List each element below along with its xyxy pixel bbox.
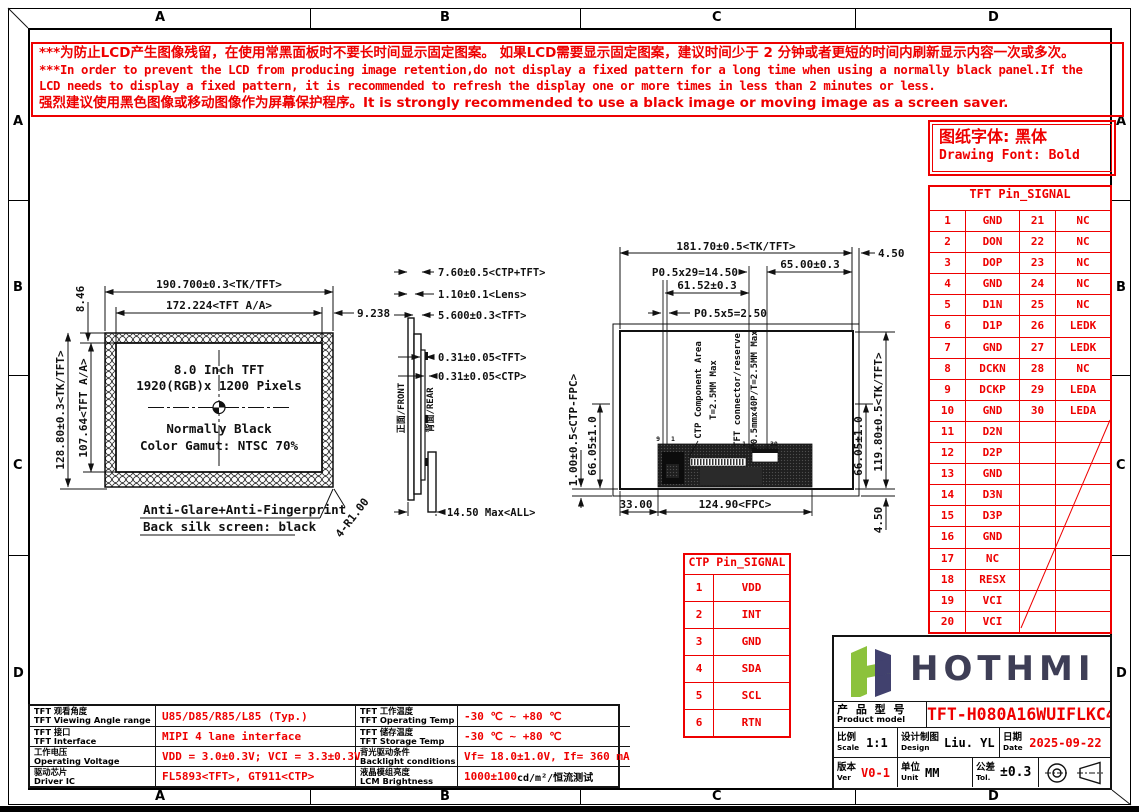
zone-divider [1112,375,1131,376]
pin-cell: 9 [930,380,966,400]
version-cell: 版本Ver V0-1 [834,758,898,787]
pin-cell: 3 [930,253,966,273]
spec-row: 驱动芯片Driver IC FL5893<TFT>, GT911<CTP> 液晶… [30,766,630,786]
zone-divider [855,8,856,28]
pin-row: 1GND21NC [930,211,1110,231]
zone-divider [580,8,581,28]
scale-cell: 比例Scale 1:1 [834,728,898,757]
pin-cell: 15 [930,506,966,526]
pin-cell: DCKN [966,359,1020,379]
pin-cell: DOP [966,253,1020,273]
pin-cell: 4 [930,274,966,294]
engineering-drawing-page: A B C D A B C D A B C D A B C D ***为防止LC… [0,0,1139,812]
pin-cell: 1 [930,211,966,231]
pin-cell [1056,485,1110,505]
pin-row: 3GND [685,628,789,655]
pin-cell: 8 [930,359,966,379]
spec-label: 背光驱动条件Backlight conditions [356,747,458,766]
pin-row: 15D3P [930,505,1110,526]
zone-label: B [1116,280,1126,295]
zone-label: B [440,10,450,25]
pin-cell: VCI [966,612,1020,632]
pin-cell [1020,570,1056,590]
third-angle-projection-icon [1044,760,1106,786]
zone-label: C [712,789,722,804]
pin-cell: 17 [930,549,966,569]
tolerance-cell: 公差Tol. ±0.3 [973,758,1039,787]
ver-unit-tol-row: 版本Ver V0-1 单位Unit MM 公差Tol. ±0.3 [834,757,1110,787]
pin-cell: 29 [1020,380,1056,400]
pin-cell: 1 [685,575,714,601]
zone-divider [8,375,28,376]
pin-cell: 11 [930,422,966,442]
pin-row: 6D1P26LEDK [930,315,1110,336]
spec-value: 1000±100 cd/m²/恒流测试 [458,767,630,786]
pin-cell [1020,549,1056,569]
hothmi-logo-icon [842,641,900,697]
pin-row: 6RTN [685,709,789,736]
zone-label: D [13,666,24,681]
tft-pin-table: TFT Pin_SIGNAL 1GND21NC 2DON22NC 3DOP23N… [928,185,1112,634]
spec-row: TFT 观看角度TFT Viewing Angle range U85/D85/… [30,706,630,726]
spec-label: TFT 观看角度TFT Viewing Angle range [30,706,156,726]
image-retention-warning: ***为防止LCD产生图像残留，在使用常黑面板时不要长时间显示固定图案。 如果L… [31,42,1124,117]
pin-cell [1056,443,1110,463]
pin-row: 5D1N25NC [930,294,1110,315]
pin-cell: D1P [966,316,1020,336]
scale-design-date-row: 比例Scale 1:1 设计制图Design Liu. YL 日期Date 20… [834,727,1110,757]
zone-label: C [13,458,23,473]
pin-cell: D3P [966,506,1020,526]
pin-cell: GND [714,629,789,655]
warning-line: ***In order to prevent the LCD from prod… [39,62,1116,79]
zone-divider [310,790,311,805]
pin-cell: 4 [685,656,714,682]
title-block: HOTHMI 产 品 型 号Product model TFT-H080A16W… [832,635,1112,790]
pin-cell: 30 [1020,401,1056,421]
pin-cell [1020,443,1056,463]
pin-cell: 25 [1020,295,1056,315]
pin-cell: 18 [930,570,966,590]
warning-line: LCD needs to display a fixed pattern, it… [39,78,1116,95]
ctp-pin-table-title: CTP Pin_SIGNAL [685,555,789,575]
pin-cell: DON [966,232,1020,252]
pin-cell: 5 [930,295,966,315]
pin-cell: D2P [966,443,1020,463]
pin-row: 4GND24NC [930,273,1110,294]
pin-cell [1056,506,1110,526]
pin-cell [1056,527,1110,547]
pin-cell: NC [1056,253,1110,273]
pin-cell: 3 [685,629,714,655]
pin-cell: DCKP [966,380,1020,400]
projection-symbol [1039,758,1110,787]
pin-cell: 26 [1020,316,1056,336]
pin-cell: 19 [930,591,966,611]
product-model-row: 产 品 型 号Product model TFT-H080A16WUIFLKC4… [834,701,1110,727]
pin-cell: RESX [966,570,1020,590]
zone-label: C [1116,458,1126,473]
zone-divider [1112,555,1131,556]
pin-cell: LEDK [1056,338,1110,358]
zone-label: B [440,789,450,804]
spec-table: TFT 观看角度TFT Viewing Angle range U85/D85/… [28,704,620,788]
pin-row: 17NC [930,548,1110,569]
product-label: 产 品 型 号Product model [834,702,927,727]
zone-divider [855,790,856,805]
spec-value: MIPI 4 lane interface [156,727,356,746]
pin-cell: VDD [714,575,789,601]
pin-cell: LEDA [1056,401,1110,421]
zone-divider [8,200,28,201]
font-note-en: Drawing Font: Bold [939,147,1105,165]
pin-cell: 20 [930,612,966,632]
pin-cell: 21 [1020,211,1056,231]
pin-cell: GND [966,401,1020,421]
pin-cell [1020,591,1056,611]
pin-cell: 13 [930,464,966,484]
pin-cell: RTN [714,710,789,736]
pin-cell [1020,506,1056,526]
zone-label: A [155,10,165,25]
ctp-pin-table: CTP Pin_SIGNAL 1VDD 2INT 3GND 4SDA 5SCL … [683,553,791,738]
zone-label: A [13,114,23,129]
pin-cell: NC [1056,211,1110,231]
pin-cell: 2 [685,602,714,628]
pin-cell: NC [966,549,1020,569]
zone-label: C [712,10,722,25]
drawing-font-note: 图纸字体: 黑体 Drawing Font: Bold [928,120,1116,176]
pin-cell: GND [966,527,1020,547]
pin-cell: 22 [1020,232,1056,252]
pin-cell: GND [966,211,1020,231]
spec-label: 驱动芯片Driver IC [30,767,156,786]
pin-cell: SDA [714,656,789,682]
pin-row: 8DCKN28NC [930,358,1110,379]
pin-cell: 5 [685,683,714,709]
pin-cell: D2N [966,422,1020,442]
zone-label: A [155,789,165,804]
pin-row: 20VCI [930,611,1110,632]
pin-cell: 14 [930,485,966,505]
spec-value: -30 ℃ ~ +80 ℃ [458,727,630,746]
pin-cell [1056,422,1110,442]
pin-cell: SCL [714,683,789,709]
product-model-value: TFT-H080A16WUIFLKC40 [927,702,1110,727]
pin-row: 2INT [685,601,789,628]
spec-label: TFT 工作温度TFT Operating Temp [356,706,458,726]
pin-row: 12D2P [930,442,1110,463]
spec-row: TFT 接口TFT Interface MIPI 4 lane interfac… [30,726,630,746]
spec-value: -30 ℃ ~ +80 ℃ [458,706,630,726]
warning-line: 强烈建议使用黑色图像或移动图像作为屏幕保护程序。It is strongly r… [39,95,1116,112]
spec-label: TFT 储存温度TFT Storage Temp [356,727,458,746]
brand-name: HOTHMI [910,649,1096,689]
pin-cell: LEDA [1056,380,1110,400]
spec-value: VDD = 3.0±0.3V; VCI = 3.3±0.3V [156,747,356,766]
pin-cell: 16 [930,527,966,547]
pin-cell: 7 [930,338,966,358]
pin-row: 3DOP23NC [930,252,1110,273]
pin-cell: NC [1056,274,1110,294]
zone-divider [580,790,581,805]
pin-cell [1056,464,1110,484]
zone-divider [8,555,28,556]
pin-cell: D3N [966,485,1020,505]
design-cell: 设计制图Design Liu. YL [898,728,1000,757]
pin-cell [1020,464,1056,484]
pin-row: 9DCKP29LEDA [930,379,1110,400]
zone-divider [1112,200,1131,201]
pin-cell [1056,591,1110,611]
zone-label: D [988,10,999,25]
spec-row: 工作电压Operating Voltage VDD = 3.0±0.3V; VC… [30,746,630,766]
font-note-cn: 图纸字体: 黑体 [939,126,1105,147]
pin-cell [1056,612,1110,632]
spec-value: Vf= 18.0±1.0V, If= 360 mA [458,747,630,766]
pin-row: 4SDA [685,655,789,682]
pin-cell: 23 [1020,253,1056,273]
zone-divider [310,8,311,28]
pin-cell: 24 [1020,274,1056,294]
pin-cell: 6 [930,316,966,336]
pin-cell: GND [966,338,1020,358]
pin-row: 13GND [930,463,1110,484]
pin-cell [1020,612,1056,632]
pin-cell [1020,527,1056,547]
pin-row: 11D2N [930,421,1110,442]
pin-cell: 12 [930,443,966,463]
pin-row: 5SCL [685,682,789,709]
pin-row: 10GND30LEDA [930,400,1110,421]
pin-cell: INT [714,602,789,628]
zone-label: D [988,789,999,804]
pin-cell [1020,422,1056,442]
pin-cell [1056,549,1110,569]
spec-label: 工作电压Operating Voltage [30,747,156,766]
date-cell: 日期Date 2025-09-22 [1000,728,1110,757]
pin-cell: 6 [685,710,714,736]
brand-logo: HOTHMI [834,637,1110,701]
zone-label: B [13,280,23,295]
pin-cell: VCI [966,591,1020,611]
pin-cell: NC [1056,359,1110,379]
spec-value: U85/D85/R85/L85 (Typ.) [156,706,356,726]
pin-row: 7GND27LEDK [930,337,1110,358]
tft-pin-table-title: TFT Pin_SIGNAL [930,187,1110,211]
warning-line: ***为防止LCD产生图像残留，在使用常黑面板时不要长时间显示固定图案。 如果L… [39,45,1116,62]
pin-row: 18RESX [930,569,1110,590]
pin-cell: 27 [1020,338,1056,358]
pin-cell: GND [966,274,1020,294]
pin-cell [1020,485,1056,505]
bottom-edge-bar [0,806,1139,812]
spec-label: 液晶模组亮度LCM Brightness [356,767,458,786]
zone-label: D [1116,666,1127,681]
pin-row: 1VDD [685,575,789,601]
pin-cell: NC [1056,295,1110,315]
pin-cell: 28 [1020,359,1056,379]
pin-row: 19VCI [930,590,1110,611]
pin-cell: NC [1056,232,1110,252]
unit-cell: 单位Unit MM [898,758,973,787]
pin-row: 16GND [930,526,1110,547]
pin-cell: 2 [930,232,966,252]
spec-value: FL5893<TFT>, GT911<CTP> [156,767,356,786]
pin-row: 2DON22NC [930,231,1110,252]
pin-cell: GND [966,464,1020,484]
pin-cell: D1N [966,295,1020,315]
pin-row: 14D3N [930,484,1110,505]
pin-cell [1056,570,1110,590]
pin-cell: 10 [930,401,966,421]
pin-cell: LEDK [1056,316,1110,336]
spec-label: TFT 接口TFT Interface [30,727,156,746]
